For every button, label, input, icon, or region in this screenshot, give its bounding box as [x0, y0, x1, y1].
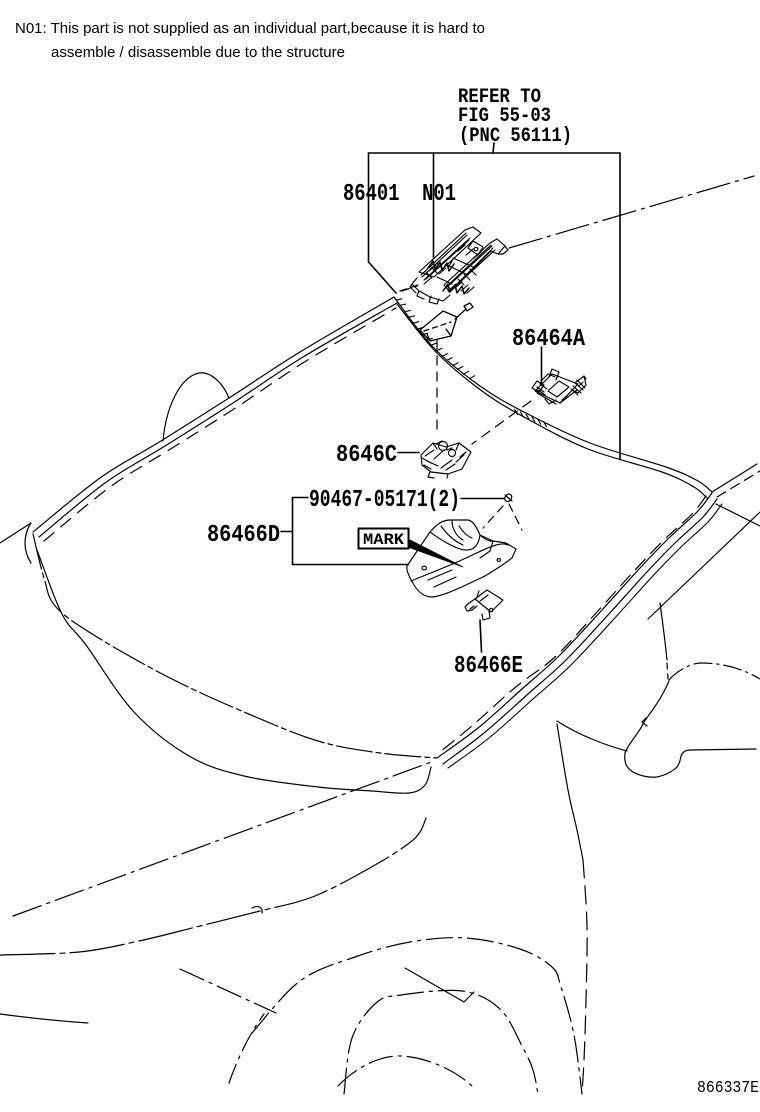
svg-text:86464A: 86464A [512, 326, 585, 353]
svg-text:86466D: 86466D [207, 522, 280, 549]
svg-text:assemble / disassemble due to: assemble / disassemble due to the struct… [51, 44, 345, 61]
svg-text:8646C: 8646C [336, 442, 397, 469]
svg-text:MARK: MARK [363, 531, 404, 549]
svg-text:90467-05171(2): 90467-05171(2) [309, 487, 460, 514]
svg-text:866337E: 866337E [697, 1078, 759, 1097]
svg-text:86401 N01: 86401 N01 [343, 181, 456, 208]
svg-text:86466E: 86466E [454, 653, 523, 680]
svg-text:(PNC 56111): (PNC 56111) [459, 125, 572, 148]
svg-text:N01: This part is not supplied: N01: This part is not supplied as an ind… [15, 20, 485, 37]
